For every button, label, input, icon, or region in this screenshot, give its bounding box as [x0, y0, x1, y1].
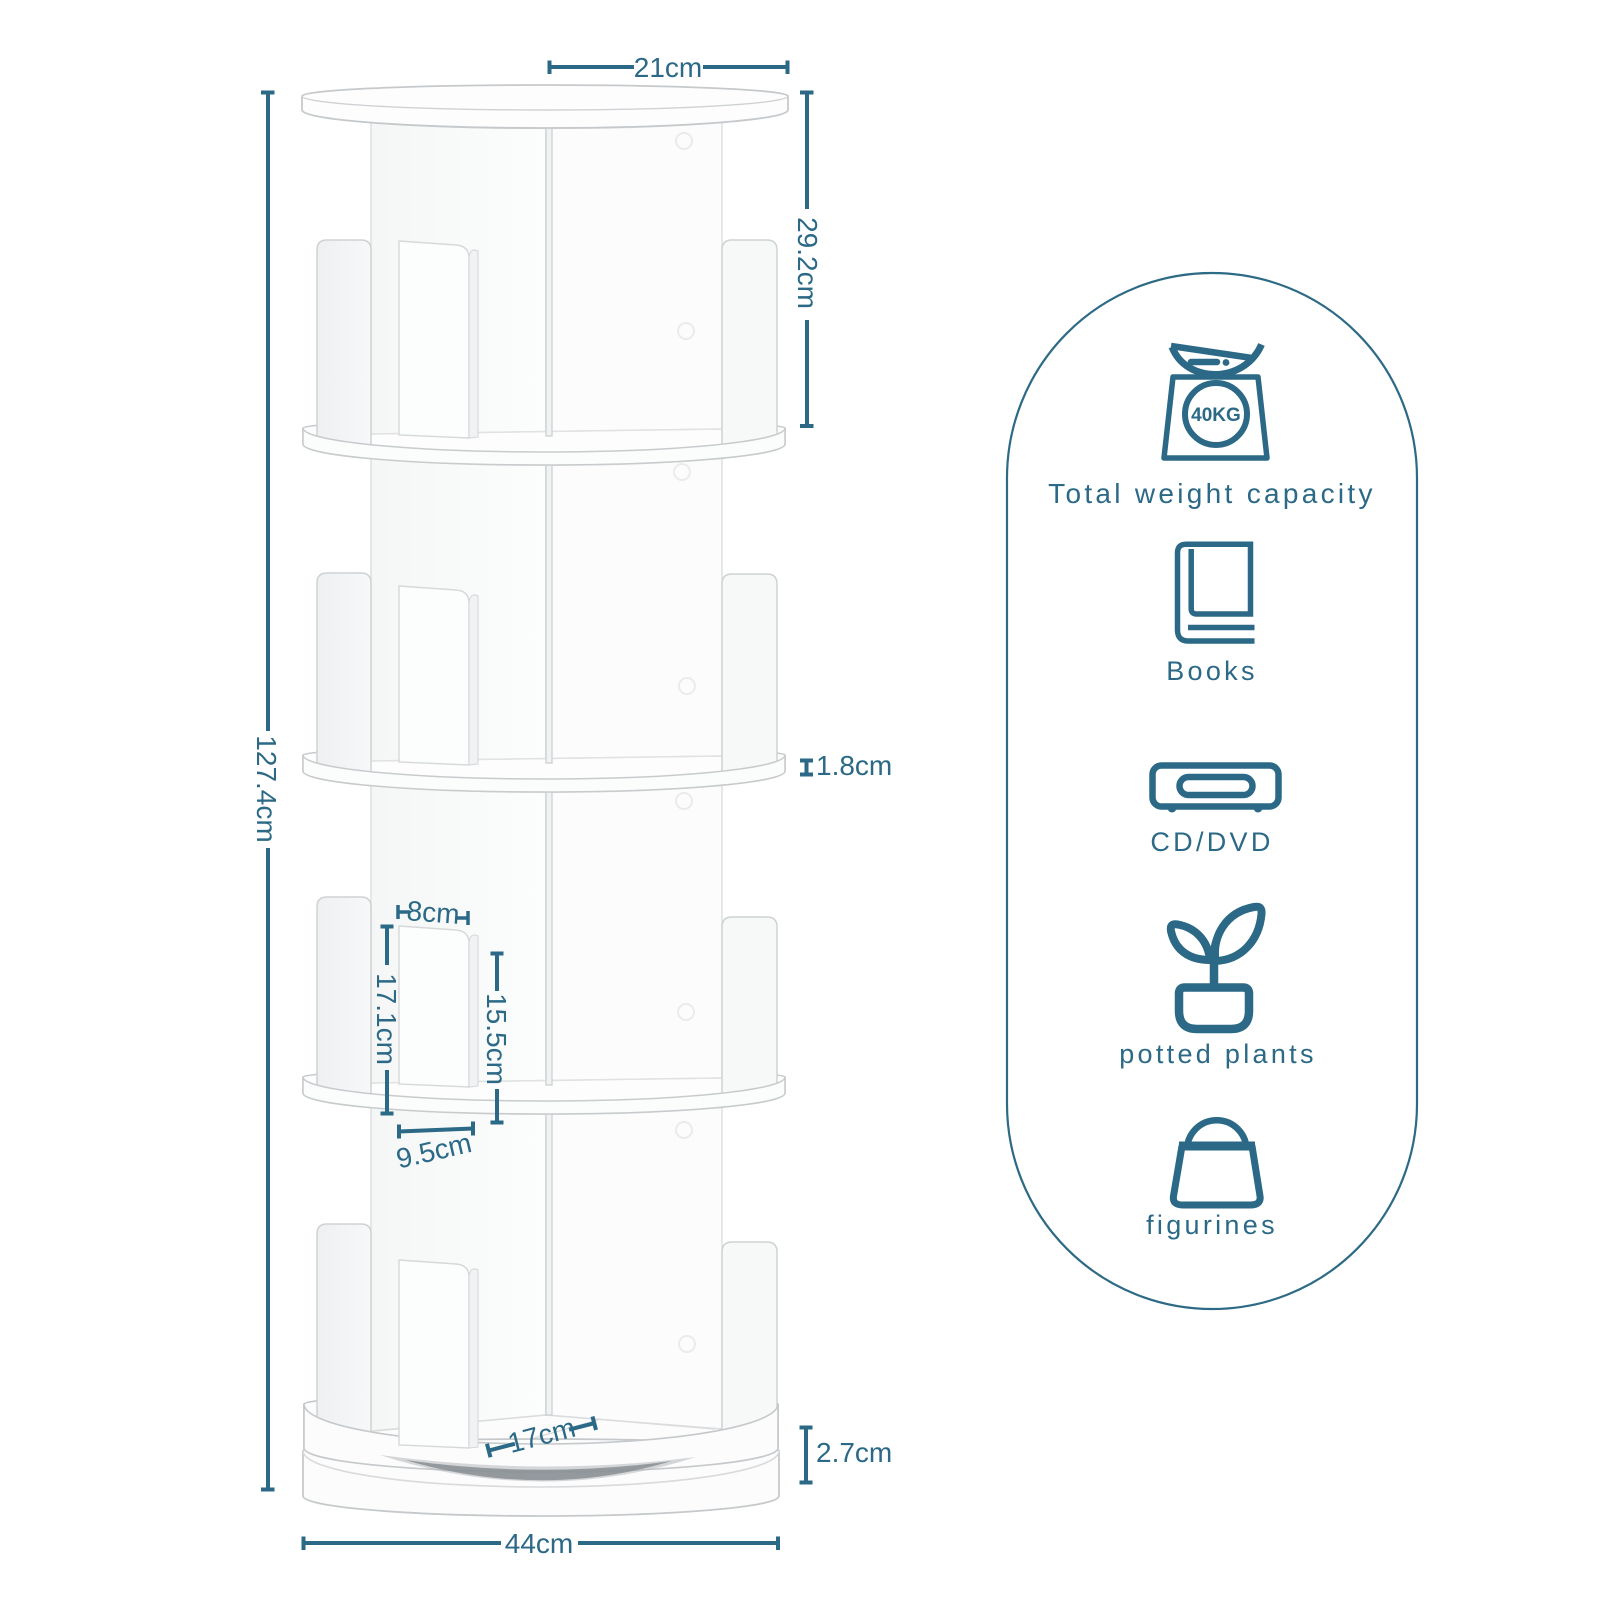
- svg-text:44cm: 44cm: [505, 1528, 573, 1559]
- svg-text:Books: Books: [1166, 656, 1258, 686]
- svg-text:8cm: 8cm: [406, 895, 461, 930]
- svg-text:CD/DVD: CD/DVD: [1150, 827, 1273, 857]
- svg-text:15.5cm: 15.5cm: [481, 993, 512, 1085]
- svg-text:Total weight capacity: Total weight capacity: [1048, 478, 1376, 509]
- svg-text:potted plants: potted plants: [1119, 1039, 1317, 1069]
- svg-text:17.1cm: 17.1cm: [371, 973, 402, 1065]
- svg-text:29.2cm: 29.2cm: [792, 217, 823, 309]
- svg-text:40KG: 40KG: [1191, 405, 1241, 426]
- svg-text:figurines: figurines: [1146, 1210, 1278, 1240]
- svg-text:21cm: 21cm: [634, 52, 702, 83]
- svg-text:127.4cm: 127.4cm: [251, 735, 282, 842]
- svg-text:2.7cm: 2.7cm: [816, 1437, 892, 1468]
- svg-text:1.8cm: 1.8cm: [816, 750, 892, 781]
